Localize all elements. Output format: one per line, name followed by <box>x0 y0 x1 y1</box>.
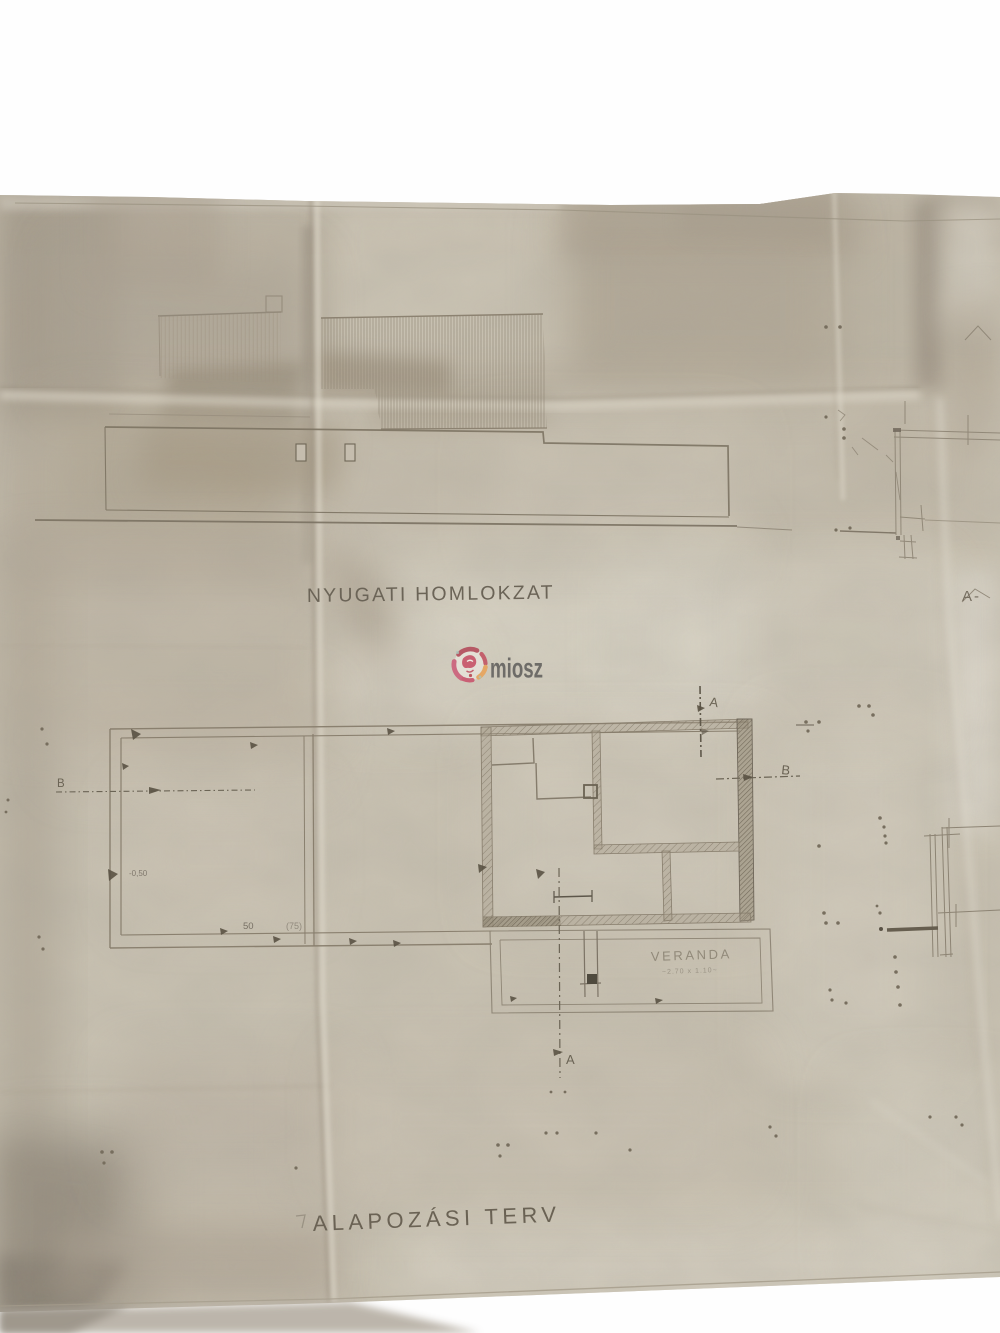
svg-text:-0,50: -0,50 <box>129 869 148 878</box>
svg-text:50: 50 <box>243 921 254 932</box>
svg-text:(75): (75) <box>286 921 302 931</box>
svg-text:A: A <box>566 1052 575 1067</box>
svg-text:miosz: miosz <box>490 653 543 684</box>
svg-text:B: B <box>57 778 65 790</box>
svg-text:VERANDA: VERANDA <box>651 946 733 964</box>
svg-text:A-: A- <box>962 588 981 605</box>
svg-text:NYUGATI HOMLOKZAT: NYUGATI HOMLOKZAT <box>307 582 555 607</box>
svg-text:B: B <box>781 762 791 778</box>
